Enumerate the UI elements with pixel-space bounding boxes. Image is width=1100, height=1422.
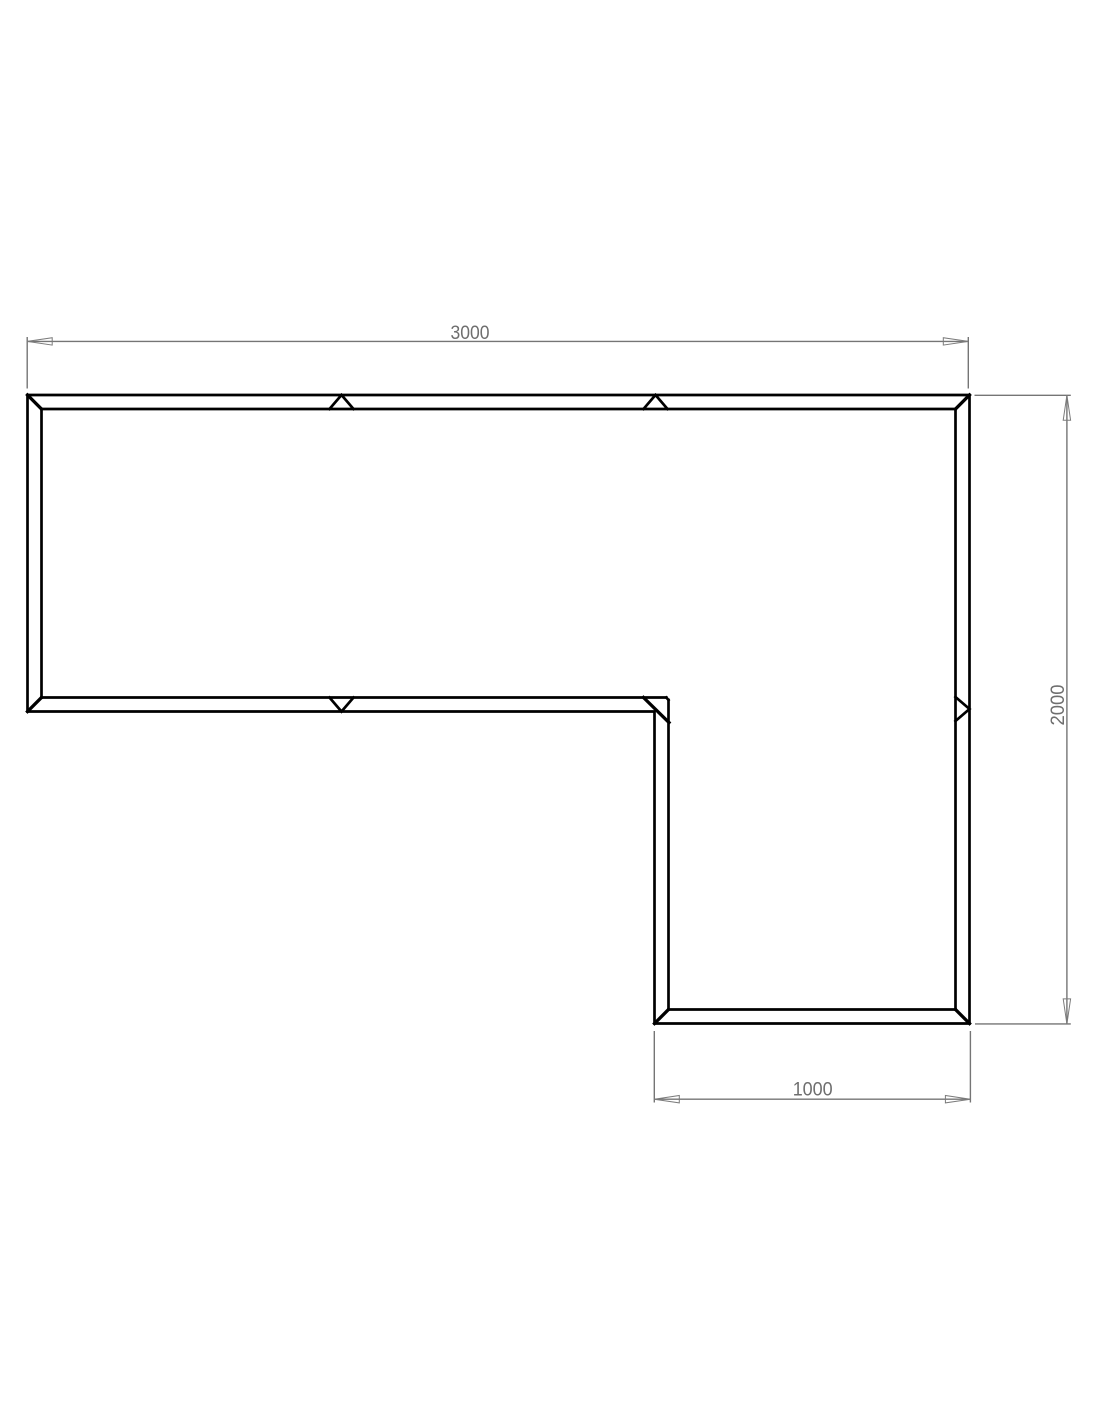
svg-text:3000: 3000 — [451, 322, 490, 344]
svg-text:2000: 2000 — [1047, 684, 1069, 725]
svg-text:1000: 1000 — [793, 1079, 833, 1101]
